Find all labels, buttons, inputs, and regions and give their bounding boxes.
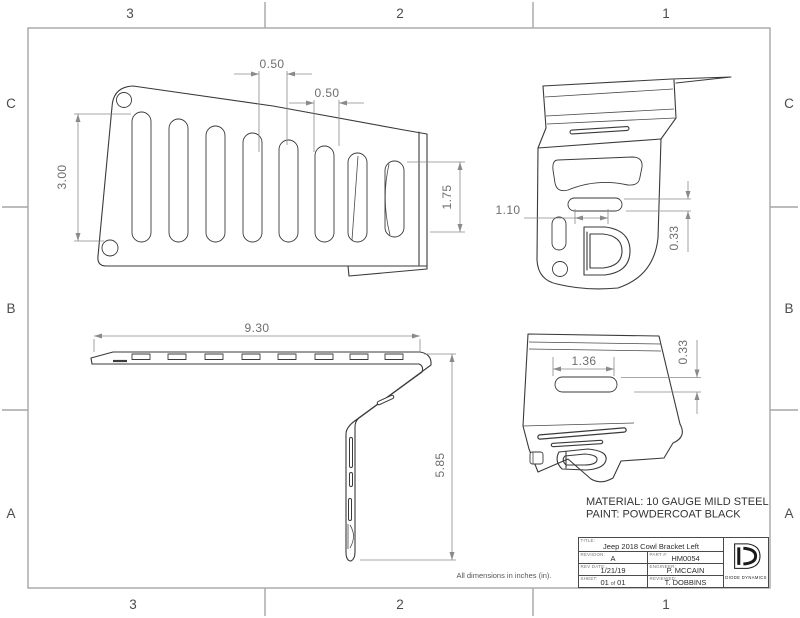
rear-view: 1.36 0.33 [523, 334, 701, 482]
zone-label-top-1: 1 [662, 6, 670, 21]
zone-label-right-C: C [784, 96, 794, 111]
drawing-canvas: 3 2 1 3 2 1 C B A C B A [0, 0, 800, 618]
dimensioned-slot [555, 377, 617, 392]
units-note: All dimensions in inches (in). [456, 571, 551, 580]
sheet-cell: SHEET: 01 of 01 [579, 576, 648, 587]
dimension-label: 9.30 [245, 321, 270, 335]
dimension-label: 0.50 [260, 57, 285, 71]
logo-cutout [584, 227, 630, 275]
dimension-label: 0.50 [315, 86, 340, 100]
title-cell: TITLE: Jeep 2018 Cowl Bracket Left [579, 538, 723, 551]
title-block-fields: TITLE: Jeep 2018 Cowl Bracket Left REVIS… [579, 538, 723, 587]
dimension-label: 0.33 [667, 226, 681, 251]
engineer-value: P. MCCAIN [648, 566, 723, 575]
drawing-title: Jeep 2018 Cowl Bracket Left [579, 542, 723, 551]
company-logo-cell: DIODE DYNAMICS [723, 538, 768, 587]
drawing-sheet: 3 2 1 3 2 1 C B A C B A [0, 0, 800, 618]
body-cutouts [552, 157, 642, 277]
revision-value: A [579, 554, 647, 563]
dimensioned-slot [568, 198, 622, 211]
zone-label-left-B: B [6, 301, 15, 316]
part-number-value: HM0054 [648, 554, 723, 563]
reviewed-value: T. DOBBINS [648, 578, 723, 587]
zone-label-right-B: B [784, 301, 793, 316]
paint-note: PAINT: POWDERCOAT BLACK [586, 509, 741, 521]
dimension-label: 1.75 [440, 185, 454, 210]
bent-strip-inner-edge [92, 364, 423, 561]
zone-label-left-A: A [6, 506, 15, 521]
lower-cutouts [530, 430, 624, 470]
part-number-cell: PART #: HM0054 [648, 552, 723, 563]
company-name: DIODE DYNAMICS [725, 575, 766, 580]
side-view: 1.10 0.33 [496, 77, 731, 289]
dimension-label: 5.85 [433, 453, 447, 478]
dimension-label: 3.00 [55, 165, 69, 190]
reviewed-cell: REVIEWED: T. DOBBINS [648, 576, 723, 587]
zone-label-bottom-3: 3 [129, 597, 137, 612]
rev-date-cell: REV DATE: 1/21/19 [579, 564, 648, 575]
side-view-dimensions: 1.10 0.33 [496, 181, 691, 252]
mounting-hole [117, 93, 132, 108]
bottom-flange-edge [348, 266, 427, 276]
zone-label-top-2: 2 [396, 6, 404, 21]
dimension-label: 0.33 [676, 340, 690, 365]
strip-end [91, 358, 92, 364]
revision-cell: REVISION: A [579, 552, 648, 563]
zone-label-bottom-1: 1 [662, 597, 670, 612]
title-block: TITLE: Jeep 2018 Cowl Bracket Left REVIS… [578, 537, 769, 588]
material-note: MATERIAL: 10 GAUGE MILD STEEL [586, 496, 769, 508]
zone-label-top-3: 3 [126, 6, 134, 21]
engineer-cell: ENGINEER: P. MCCAIN [648, 564, 723, 575]
vent-slots [132, 112, 404, 242]
rev-date-value: 1/21/19 [579, 566, 647, 575]
top-view: 9.30 5.85 [91, 321, 456, 561]
zone-label-bottom-2: 2 [396, 597, 404, 612]
front-view: 0.50 0.50 3.00 1.75 [55, 57, 465, 276]
dimension-label: 1.10 [496, 203, 521, 217]
zone-label-right-A: A [784, 506, 793, 521]
bent-strip-outline [91, 352, 431, 561]
sheet-value: 01 of 01 [579, 578, 647, 587]
slot-edges [113, 354, 403, 549]
bracket-rear-outline [523, 334, 682, 482]
dimension-label: 1.36 [572, 354, 597, 368]
diode-dynamics-logo-icon [725, 540, 767, 574]
mounting-hole [102, 240, 118, 256]
top-flange [538, 77, 731, 148]
zone-label-left-C: C [6, 96, 16, 111]
